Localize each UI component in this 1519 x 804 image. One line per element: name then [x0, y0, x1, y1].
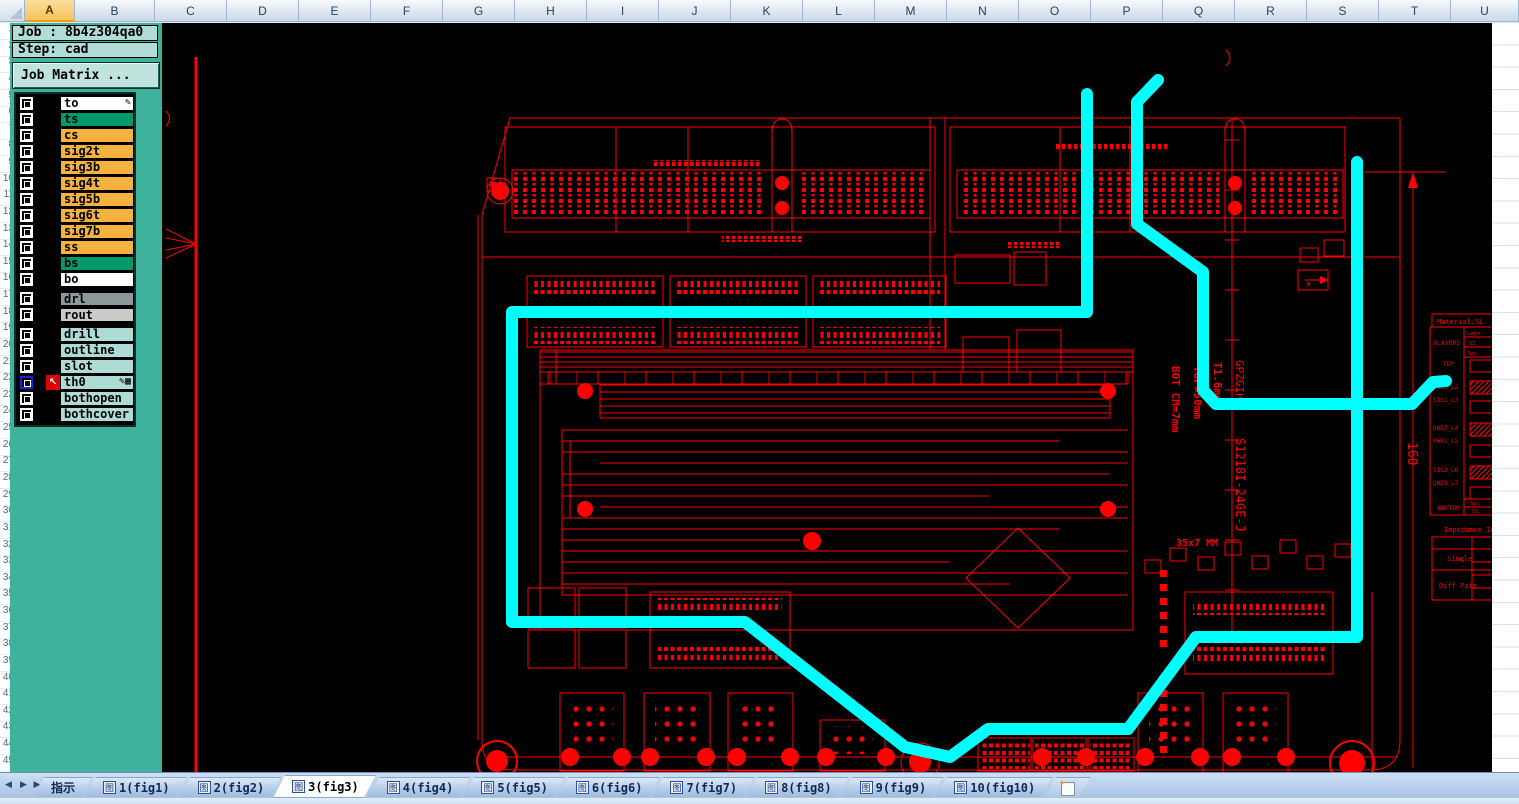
column-header-M[interactable]: M: [875, 0, 947, 22]
sheet-tab-label: 指示: [51, 779, 75, 796]
layer-checkbox-cell: [16, 344, 46, 357]
layer-checkbox-cell: [16, 209, 46, 222]
trace-bundle: [562, 430, 1128, 595]
layer-row-drl: drl: [16, 292, 134, 307]
layer-arrow-slot: [46, 208, 60, 223]
pcb-artwork: BOT CM=7mm TOP=50mm T1.6mm GPZGIHS S1218…: [162, 23, 1492, 772]
stackup-layers-count: 8LAYERS: [1433, 339, 1460, 347]
sheet-tab-label: 5(fig5): [497, 781, 548, 795]
dimension-160: 160: [1404, 442, 1419, 465]
size-note: 35x7 MM: [1176, 538, 1218, 549]
app-window: ABCDEFGHIJKLMNOPQRSTU 123456789101112131…: [0, 0, 1519, 804]
layer-checkbox-cell: [16, 408, 46, 421]
svg-text:SI: SI: [1469, 341, 1476, 347]
svg-text:TOP: TOP: [1443, 361, 1454, 368]
layer-label-ss[interactable]: ss: [60, 240, 134, 255]
layer-checkbox-cell: [16, 392, 46, 405]
layer-label-sig6t[interactable]: sig6t: [60, 208, 134, 223]
layer-arrow-slot: [46, 112, 60, 127]
column-header-Q[interactable]: Q: [1163, 0, 1235, 22]
layer-checkbox-ss[interactable]: [20, 241, 33, 254]
layer-checkbox-outline[interactable]: [20, 344, 33, 357]
layer-arrow-slot: [46, 343, 60, 358]
sheet-tab-label: 6(fig6): [592, 781, 643, 795]
column-header-C[interactable]: C: [155, 0, 227, 22]
svg-text:GND2_L4: GND2_L4: [1433, 425, 1459, 432]
sheet-tab-图3(fig3)[interactable]: 图3(fig3): [273, 775, 376, 798]
column-header-B[interactable]: B: [75, 0, 155, 22]
layer-arrow-slot: [46, 391, 60, 406]
layer-checkbox-cell: [16, 97, 46, 110]
column-header-H[interactable]: H: [515, 0, 587, 22]
layer-label-bs[interactable]: bs: [60, 256, 134, 271]
micro-text-marks: [722, 236, 804, 242]
layer-arrow-slot: [46, 272, 60, 287]
micro-text-marks: [1006, 242, 1062, 248]
layer-checkbox-cell: [16, 129, 46, 142]
layer-checkbox-sig2t[interactable]: [20, 145, 33, 158]
layer-arrow-slot: [46, 240, 60, 255]
sheet-tab-图10(fig10)[interactable]: 图10(fig10): [935, 777, 1052, 798]
layer-checkbox-rout[interactable]: [20, 308, 33, 321]
layer-label-ts[interactable]: ts: [60, 112, 134, 127]
layer-label-th0[interactable]: th0✎▦: [60, 375, 134, 390]
layer-row-sig4t: sig4t: [16, 176, 134, 191]
layer-arrow-slot: [46, 256, 60, 271]
new-sheet-icon: ✦: [1061, 782, 1075, 796]
column-header-O[interactable]: O: [1019, 0, 1091, 22]
layer-label-rout[interactable]: rout: [60, 308, 134, 323]
layer-checkbox-cell: [16, 193, 46, 206]
layer-checkbox-sig6t[interactable]: [20, 209, 33, 222]
layer-row-bothcover: bothcover: [16, 407, 134, 422]
layer-checkbox-cell: [16, 292, 46, 305]
column-header-E[interactable]: E: [299, 0, 371, 22]
spreadsheet-cells-strip: [1492, 23, 1519, 772]
layer-checkbox-to[interactable]: [20, 97, 33, 110]
column-header-N[interactable]: N: [947, 0, 1019, 22]
layer-checkbox-cell: [16, 273, 46, 286]
tab-nav-next[interactable]: ▶: [17, 777, 30, 792]
layer-label-sig3b[interactable]: sig3b: [60, 160, 134, 175]
layer-checkbox-cell: [16, 177, 46, 190]
layer-arrow-slot: [46, 359, 60, 374]
sheet-tab-label: 1(fig1): [119, 781, 170, 795]
layer-checkbox-cell: [16, 161, 46, 174]
layer-label-sig2t[interactable]: sig2t: [60, 144, 134, 159]
column-header-I[interactable]: I: [587, 0, 659, 22]
layer-label-to[interactable]: to✎: [60, 96, 134, 111]
sheet-icon: 图: [954, 781, 967, 794]
sheet-tab-图9(fig9)[interactable]: 图9(fig9): [841, 777, 944, 798]
layer-row-sig5b: sig5b: [16, 192, 134, 207]
layer-label-sig4t[interactable]: sig4t: [60, 176, 134, 191]
layer-checkbox-cell: [16, 257, 46, 270]
layer-row-ts: ts: [16, 112, 134, 127]
layer-arrow-slot: [46, 128, 60, 143]
layer-checkbox-cs[interactable]: [20, 129, 33, 142]
layer-arrow-slot: [46, 96, 60, 111]
diamond-marker: [966, 528, 1070, 628]
note-bot: BOT CM=7mm: [1169, 366, 1182, 433]
job-matrix-button[interactable]: Job Matrix ...: [12, 62, 160, 89]
layer-group-1: to✎tscssig2tsig3bsig4tsig5bsig6tsig7bssb…: [16, 96, 134, 287]
layer-checkbox-sig5b[interactable]: [20, 193, 33, 206]
sheet-tab-label: 4(fig4): [403, 781, 454, 795]
sheet-tab-label: 7(fig7): [686, 781, 737, 795]
status-bar: [0, 797, 1519, 804]
column-header-S[interactable]: S: [1307, 0, 1379, 22]
layer-arrow-slot: [46, 407, 60, 422]
layer-checkbox-cell: [16, 360, 46, 373]
column-header-T[interactable]: T: [1379, 0, 1451, 22]
layer-arrow-slot: [46, 144, 60, 159]
layer-checkbox-sig4t[interactable]: [20, 177, 33, 190]
sheet-tab-label: 2(fig2): [214, 781, 265, 795]
impedance-title: Impedance Inf: [1444, 526, 1492, 534]
column-header-L[interactable]: L: [803, 0, 875, 22]
column-header-row: ABCDEFGHIJKLMNOPQRSTU: [0, 0, 1519, 23]
layer-checkbox-cell: [16, 376, 46, 389]
sheet-icon: 图: [103, 781, 116, 794]
svg-text:GND3_L7: GND3_L7: [1433, 480, 1459, 487]
layer-row-sig2t: sig2t: [16, 144, 134, 159]
micro-text-marks: [1056, 143, 1168, 149]
layer-label-bo[interactable]: bo: [60, 272, 134, 287]
layer-row-bothopen: bothopen: [16, 391, 134, 406]
layer-arrow-slot: [46, 292, 60, 307]
layer-checkbox-bo[interactable]: [20, 273, 33, 286]
layer-checkbox-sig7b[interactable]: [20, 225, 33, 238]
layer-label-bothcover[interactable]: bothcover: [60, 407, 134, 422]
layer-checkbox-cell: [16, 113, 46, 126]
layer-checkbox-bothcover[interactable]: [20, 408, 33, 421]
sheet-icon: 图: [765, 781, 778, 794]
layer-checkbox-drl[interactable]: [20, 292, 33, 305]
column-header-D[interactable]: D: [227, 0, 299, 22]
layer-label-sig7b[interactable]: sig7b: [60, 224, 134, 239]
sheet-tab-图6(fig6)[interactable]: 图6(fig6): [557, 777, 660, 798]
layer-row-sig6t: sig6t: [16, 208, 134, 223]
layer-row-sig3b: sig3b: [16, 160, 134, 175]
sheet-tab-label: 8(fig8): [781, 781, 832, 795]
pad-fills: [486, 143, 1418, 772]
layer-label-cs[interactable]: cs: [60, 128, 134, 143]
layer-row-ss: ss: [16, 240, 134, 255]
layer-arrow-slot: [46, 160, 60, 175]
column-header-K[interactable]: K: [731, 0, 803, 22]
layer-row-drill: drill: [16, 327, 134, 342]
layer-checkbox-sig3b[interactable]: [20, 161, 33, 174]
sheet-tab-图5(fig5)[interactable]: 图5(fig5): [462, 777, 565, 798]
sheet-icon: 图: [292, 780, 305, 793]
sheet-tab-label: 3(fig3): [308, 780, 359, 794]
layer-checkbox-ts[interactable]: [20, 113, 33, 126]
step-label: Step: cad: [12, 42, 158, 58]
column-header-A[interactable]: A: [25, 0, 75, 22]
svg-text:SIG2_L6: SIG2_L6: [1433, 467, 1459, 474]
column-header-R[interactable]: R: [1235, 0, 1307, 22]
layer-row-outline: outline: [16, 343, 134, 358]
sheet-tab-bar: ◀▶▶| 指示图1(fig1)图2(fig2)图3(fig3)图4(fig4)图…: [0, 772, 1519, 797]
job-label: Job : 8b4z304qa0: [12, 25, 158, 41]
tab-nav-prev[interactable]: ◀: [2, 777, 15, 792]
stackup-title: Material:SL: [1437, 318, 1483, 326]
layer-row-bs: bs: [16, 256, 134, 271]
layer-checkbox-cell: [16, 225, 46, 238]
pen-icon: ✎▦: [119, 376, 133, 388]
micro-text-marks: [652, 160, 762, 166]
svg-text:Single: Single: [1447, 555, 1472, 563]
sheet-icon: 图: [670, 781, 683, 794]
side-panel: Job : 8b4z304qa0 Step: cad Job Matrix ..…: [10, 23, 162, 772]
layer-checkbox-cell: [16, 308, 46, 321]
svg-text:PWR1_L5: PWR1_L5: [1433, 438, 1459, 445]
layer-arrow-slot: [46, 327, 60, 342]
layer-checkbox-slot[interactable]: [20, 360, 33, 373]
sheet-tab-label: 9(fig9): [876, 781, 927, 795]
layer-row-cs: cs: [16, 128, 134, 143]
column-header-J[interactable]: J: [659, 0, 731, 22]
sheet-icon: 图: [576, 781, 589, 794]
layer-group-2: drlrout: [16, 292, 134, 323]
sheet-icon: 图: [481, 781, 494, 794]
column-header-U[interactable]: U: [1451, 0, 1519, 22]
layer-checkbox-cell: [16, 145, 46, 158]
layer-label-slot[interactable]: slot: [60, 359, 134, 374]
part-number: S1218I-24GE-J: [1233, 438, 1247, 532]
axis-marker: x: [1306, 279, 1311, 288]
column-header-G[interactable]: G: [443, 0, 515, 22]
layer-label-bothopen[interactable]: bothopen: [60, 391, 134, 406]
svg-text:Sec: Sec: [1467, 351, 1477, 357]
active-layer-arrow-icon[interactable]: ↖: [46, 375, 60, 390]
svg-text:Sec: Sec: [1470, 501, 1480, 507]
layer-list: to✎tscssig2tsig3bsig4tsig5bsig6tsig7bssb…: [14, 92, 136, 427]
layer-arrow-slot: [46, 192, 60, 207]
layer-label-drl[interactable]: drl: [60, 292, 134, 307]
layer-label-drill[interactable]: drill: [60, 327, 134, 342]
layer-label-sig5b[interactable]: sig5b: [60, 192, 134, 207]
sheet-tabs: 指示图1(fig1)图2(fig2)图3(fig3)图4(fig4)图5(fig…: [40, 775, 1090, 798]
column-header-F[interactable]: F: [371, 0, 443, 22]
column-header-P[interactable]: P: [1091, 0, 1163, 22]
layer-checkbox-bothopen[interactable]: [20, 392, 33, 405]
layer-row-bo: bo: [16, 272, 134, 287]
layer-arrow-slot: [46, 308, 60, 323]
sheet-tab-图1(fig1)[interactable]: 图1(fig1): [84, 777, 187, 798]
layer-group-3: drilloutlineslot↖th0✎▦bothopenbothcover: [16, 327, 134, 422]
sheet-tab-图8(fig8)[interactable]: 图8(fig8): [746, 777, 849, 798]
layer-row-sig7b: sig7b: [16, 224, 134, 239]
canvas-labels: BOT CM=7mm TOP=50mm T1.6mm GPZGIHS S1218…: [1169, 279, 1492, 590]
sheet-tab-图7(fig7)[interactable]: 图7(fig7): [651, 777, 754, 798]
svg-text:BOTTOM: BOTTOM: [1438, 505, 1460, 512]
layer-arrow-slot: [46, 224, 60, 239]
svg-text:Diff Pair: Diff Pair: [1439, 582, 1477, 590]
layer-label-outline[interactable]: outline: [60, 343, 134, 358]
layer-row-slot: slot: [16, 359, 134, 374]
svg-text:Laye: Laye: [1467, 331, 1480, 337]
select-all-corner[interactable]: [0, 0, 25, 22]
layer-checkbox-drill[interactable]: [20, 328, 33, 341]
layer-row-to: to✎: [16, 96, 134, 111]
cad-viewport[interactable]: BOT CM=7mm TOP=50mm T1.6mm GPZGIHS S1218…: [162, 23, 1492, 772]
layer-arrow-slot: [46, 176, 60, 191]
sheet-tab-图2(fig2)[interactable]: 图2(fig2): [179, 777, 282, 798]
layer-checkbox-cell: [16, 328, 46, 341]
sheet-icon: 图: [860, 781, 873, 794]
sheet-icon: 图: [198, 781, 211, 794]
layer-row-th0: ↖th0✎▦: [16, 375, 134, 390]
sheet-icon: 图: [387, 781, 400, 794]
layer-row-rout: rout: [16, 308, 134, 323]
sheet-tab-label: 10(fig10): [970, 781, 1035, 795]
svg-text:Si: Si: [1472, 509, 1479, 515]
board-outline-group: [166, 50, 1492, 772]
sheet-tab-图4(fig4)[interactable]: 图4(fig4): [368, 777, 471, 798]
layer-checkbox-cell: [16, 241, 46, 254]
layer-checkbox-th0[interactable]: [20, 376, 33, 389]
sheet-tab-指示[interactable]: 指示: [32, 777, 92, 798]
pen-icon: ✎: [125, 97, 133, 109]
layer-checkbox-bs[interactable]: [20, 257, 33, 270]
svg-text:SIG1_L3: SIG1_L3: [1433, 397, 1459, 404]
